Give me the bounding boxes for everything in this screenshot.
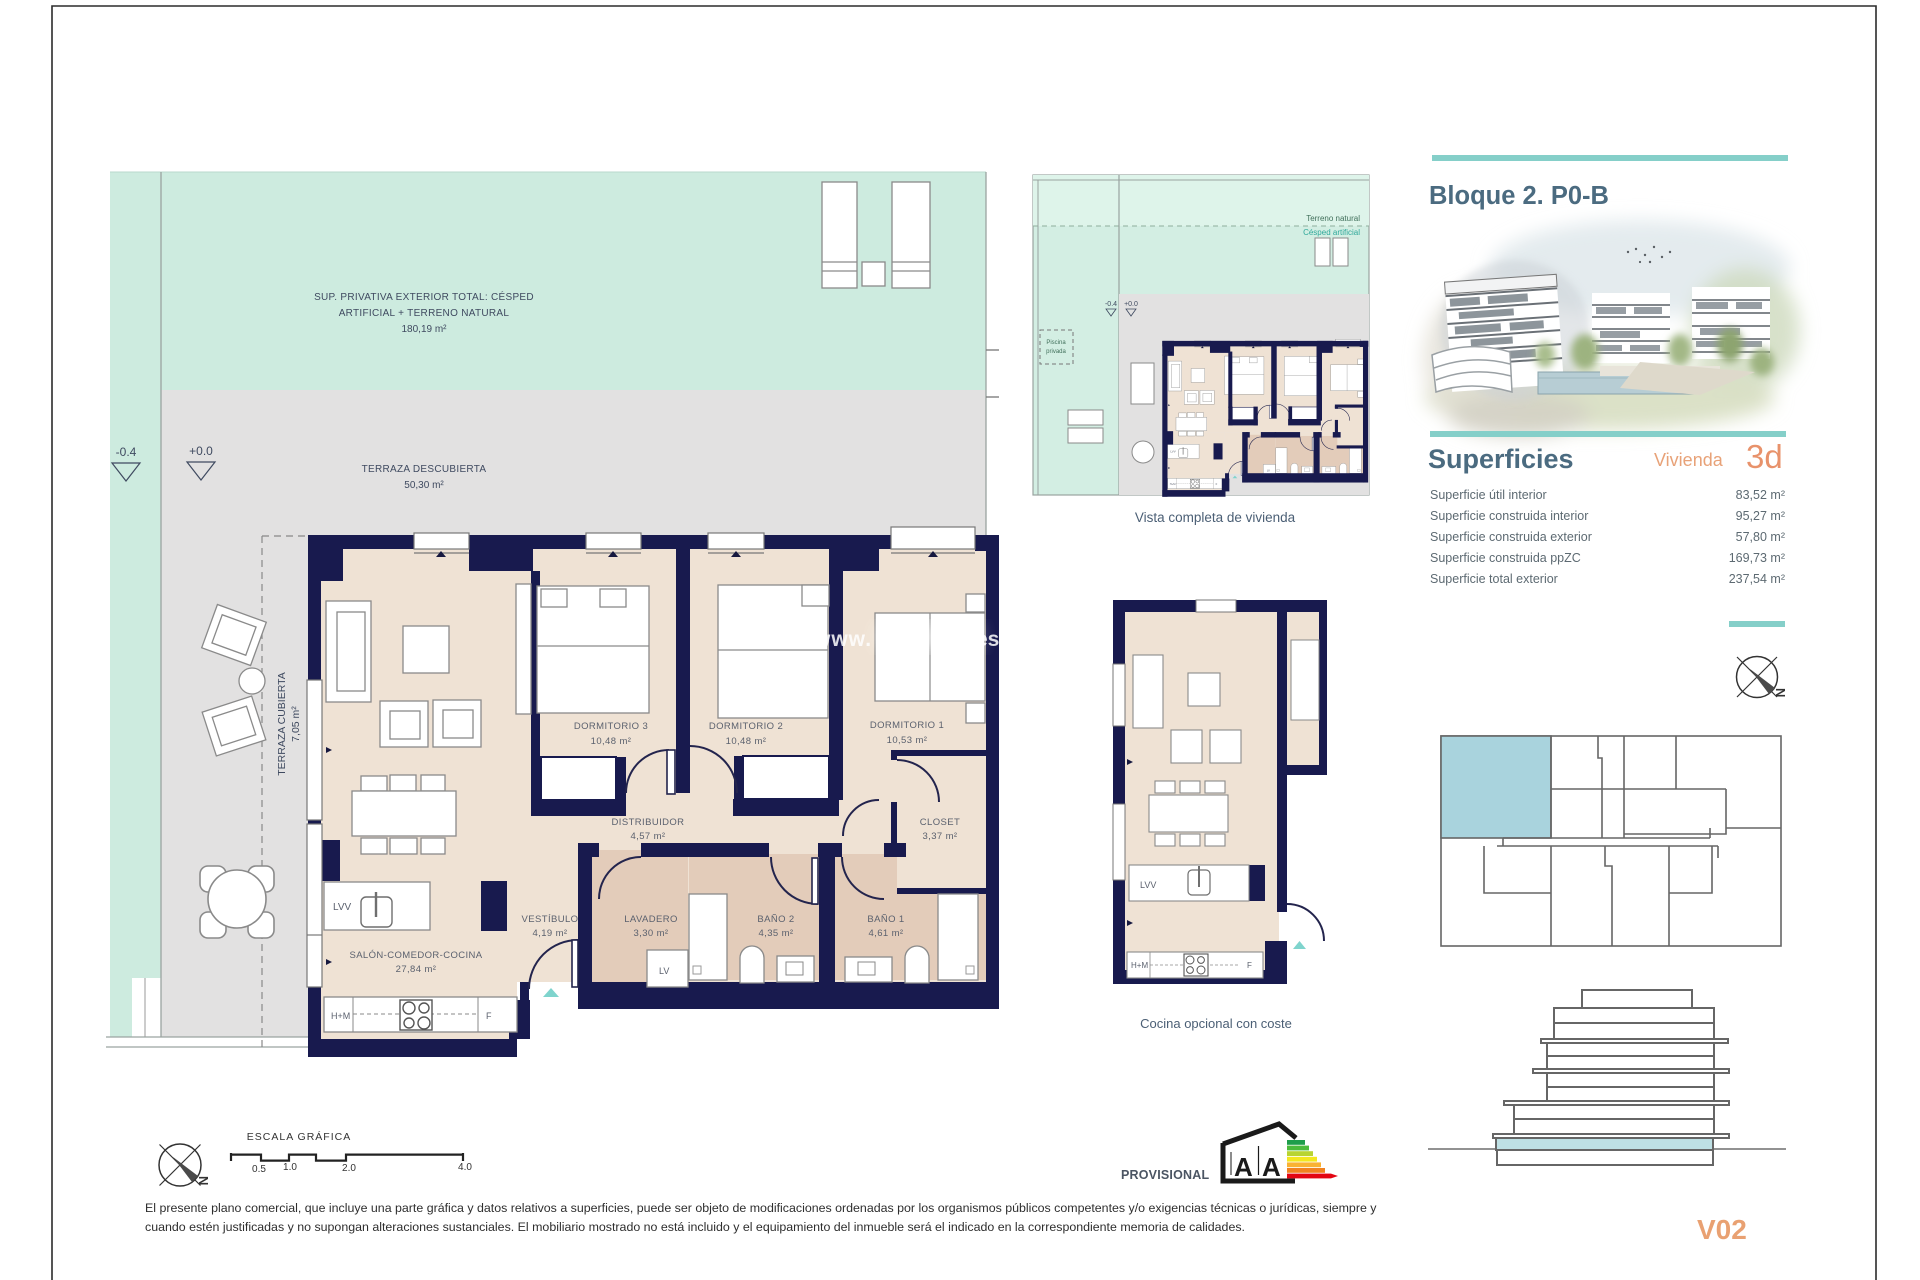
- svg-text:VESTÍBULO: VESTÍBULO: [522, 914, 579, 925]
- svg-text:DORMITORIO 2: DORMITORIO 2: [709, 721, 783, 732]
- svg-text:4,19 m²: 4,19 m²: [532, 928, 567, 939]
- svg-text:ESCALA GRÁFICA: ESCALA GRÁFICA: [247, 1130, 351, 1143]
- svg-text:4,61 m²: 4,61 m²: [868, 928, 903, 939]
- svg-text:3,37 m²: 3,37 m²: [922, 831, 957, 842]
- svg-text:Bloque 2. P0-B: Bloque 2. P0-B: [1429, 182, 1609, 210]
- svg-text:Césped artificial: Césped artificial: [1303, 228, 1360, 237]
- svg-text:237,54 m²: 237,54 m²: [1729, 572, 1785, 586]
- svg-text:CLOSET: CLOSET: [920, 817, 960, 828]
- svg-text:LVV: LVV: [1140, 880, 1156, 890]
- svg-text:27,84 m²: 27,84 m²: [396, 964, 437, 975]
- svg-text:-0.4: -0.4: [116, 445, 137, 459]
- svg-text:TERRAZA DESCUBIERTA: TERRAZA DESCUBIERTA: [362, 464, 487, 475]
- svg-text:Superficie construida interior: Superficie construida interior: [1430, 509, 1588, 523]
- svg-text:0.5: 0.5: [252, 1164, 266, 1175]
- svg-text:H+M: H+M: [331, 1011, 350, 1021]
- svg-text:BAÑO 1: BAÑO 1: [867, 914, 904, 925]
- svg-text:50,30 m²: 50,30 m²: [404, 480, 444, 491]
- svg-text:Cocina opcional con coste: Cocina opcional con coste: [1140, 1016, 1292, 1031]
- svg-text:Superficie útil interior: Superficie útil interior: [1430, 488, 1547, 502]
- svg-text:www.: www.: [813, 628, 872, 651]
- svg-text:10,48 m²: 10,48 m²: [591, 736, 632, 747]
- svg-text:-0.4: -0.4: [1105, 301, 1117, 308]
- svg-text:Superficie construida exterior: Superficie construida exterior: [1430, 530, 1592, 544]
- svg-text:PROVISIONAL: PROVISIONAL: [1121, 1168, 1209, 1182]
- svg-text:Superficie total exterior: Superficie total exterior: [1430, 572, 1558, 586]
- svg-text:V02: V02: [1697, 1214, 1747, 1245]
- svg-text:DORMITORIO 1: DORMITORIO 1: [870, 720, 944, 731]
- svg-text:LVV: LVV: [333, 902, 351, 913]
- svg-text:Vivienda: Vivienda: [1654, 450, 1724, 470]
- svg-text:+0.0: +0.0: [189, 444, 213, 458]
- svg-text:95,27 m²: 95,27 m²: [1736, 509, 1785, 523]
- svg-text:Terreno natural: Terreno natural: [1306, 214, 1360, 223]
- svg-text:ARTIFICIAL + TERRENO NATURAL: ARTIFICIAL + TERRENO NATURAL: [339, 308, 510, 319]
- svg-text:SUP. PRIVATIVA EXTERIOR TOTAL:: SUP. PRIVATIVA EXTERIOR TOTAL: CÉSPED: [314, 290, 534, 303]
- svg-text:7,05 m²: 7,05 m²: [290, 706, 302, 742]
- svg-text:es: es: [976, 628, 999, 651]
- svg-text:TERRAZA CUBIERTA: TERRAZA CUBIERTA: [276, 672, 288, 775]
- svg-text:Vista completa de vivienda: Vista completa de vivienda: [1135, 510, 1296, 525]
- svg-text:F: F: [486, 1011, 492, 1021]
- svg-text:3,30 m²: 3,30 m²: [633, 928, 668, 939]
- svg-text:El presente plano comercial, q: El presente plano comercial, que incluye…: [145, 1201, 1377, 1215]
- svg-text:BAÑO 2: BAÑO 2: [757, 914, 794, 925]
- svg-text:1.0: 1.0: [283, 1162, 297, 1173]
- svg-text:169,73 m²: 169,73 m²: [1729, 551, 1785, 565]
- svg-text:DORMITORIO 3: DORMITORIO 3: [574, 721, 648, 732]
- svg-text:4,35 m²: 4,35 m²: [758, 928, 793, 939]
- svg-text:LAVADERO: LAVADERO: [624, 914, 678, 925]
- svg-text:cuando estén justificadas y no: cuando estén justificadas y no supongan …: [145, 1220, 1245, 1234]
- svg-text:SALÓN-COMEDOR-COCINA: SALÓN-COMEDOR-COCINA: [349, 950, 482, 961]
- svg-text:+0.0: +0.0: [1124, 301, 1138, 308]
- svg-text:2.0: 2.0: [342, 1163, 356, 1174]
- svg-text:57,80 m²: 57,80 m²: [1736, 530, 1785, 544]
- svg-text:Superficies: Superficies: [1428, 444, 1574, 474]
- svg-text:10,48 m²: 10,48 m²: [726, 736, 767, 747]
- svg-text:Piscina: Piscina: [1046, 340, 1066, 346]
- svg-text:N: N: [1773, 688, 1788, 697]
- svg-text:180,19 m²: 180,19 m²: [401, 324, 447, 335]
- svg-text:3d: 3d: [1746, 438, 1783, 475]
- svg-text:A: A: [1262, 1152, 1281, 1182]
- svg-text:N: N: [196, 1176, 211, 1185]
- svg-text:LV: LV: [659, 966, 669, 976]
- svg-text:10,53 m²: 10,53 m²: [887, 735, 928, 746]
- svg-text:4,57 m²: 4,57 m²: [630, 831, 665, 842]
- svg-text:83,52 m²: 83,52 m²: [1736, 488, 1785, 502]
- svg-text:F: F: [1247, 961, 1252, 970]
- svg-text:Superficie construida ppZC: Superficie construida ppZC: [1430, 551, 1581, 565]
- svg-text:DISTRIBUIDOR: DISTRIBUIDOR: [612, 817, 685, 828]
- svg-text:H+M: H+M: [1131, 961, 1148, 970]
- svg-text:privada: privada: [1046, 349, 1066, 355]
- svg-text:4.0: 4.0: [458, 1162, 472, 1173]
- svg-text:A: A: [1234, 1152, 1253, 1182]
